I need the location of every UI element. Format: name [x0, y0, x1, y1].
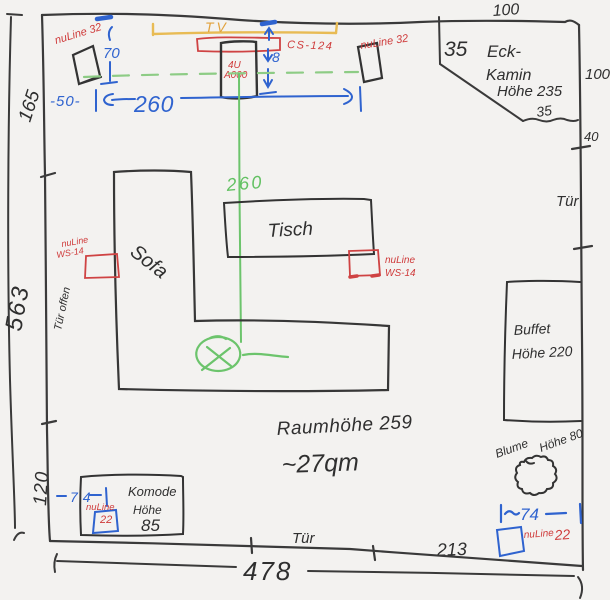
- svg-text:Tür: Tür: [556, 193, 580, 210]
- svg-text:CS-124: CS-124: [287, 39, 334, 53]
- svg-text:Höhe 235: Höhe 235: [497, 83, 563, 100]
- svg-text:70: 70: [103, 45, 120, 62]
- svg-text:~27qm: ~27qm: [281, 448, 359, 479]
- svg-text:478: 478: [243, 556, 292, 586]
- svg-text:Buffet: Buffet: [513, 320, 551, 338]
- svg-text:22: 22: [99, 514, 112, 526]
- svg-text:100: 100: [492, 1, 520, 20]
- svg-text:40: 40: [584, 129, 599, 144]
- svg-text:35: 35: [535, 102, 553, 120]
- svg-text:8: 8: [272, 49, 280, 65]
- svg-text:120: 120: [30, 470, 53, 506]
- svg-text:100: 100: [585, 66, 610, 83]
- svg-text:WS-14: WS-14: [385, 268, 416, 279]
- svg-text:Tisch: Tisch: [267, 219, 313, 242]
- svg-text:TV: TV: [205, 19, 229, 35]
- svg-text:22: 22: [553, 526, 571, 543]
- svg-text:260: 260: [225, 172, 265, 195]
- svg-text:Eck-: Eck-: [487, 42, 521, 61]
- svg-text:Höhe: Höhe: [133, 503, 162, 517]
- svg-text:74: 74: [520, 505, 539, 524]
- svg-text:Höhe 220: Höhe 220: [511, 343, 573, 362]
- svg-text:85: 85: [141, 516, 160, 535]
- svg-text:A000: A000: [223, 70, 248, 81]
- svg-text:Tür: Tür: [292, 530, 316, 547]
- svg-text:-50-: -50-: [50, 93, 81, 110]
- svg-text:nuLine: nuLine: [385, 255, 415, 266]
- svg-text:Komode: Komode: [128, 484, 176, 499]
- svg-text:35: 35: [444, 38, 468, 61]
- svg-text:Kamin: Kamin: [486, 67, 531, 84]
- svg-text:nuLine: nuLine: [523, 528, 554, 541]
- svg-text:260: 260: [133, 91, 174, 117]
- svg-text:nuLine: nuLine: [86, 502, 115, 513]
